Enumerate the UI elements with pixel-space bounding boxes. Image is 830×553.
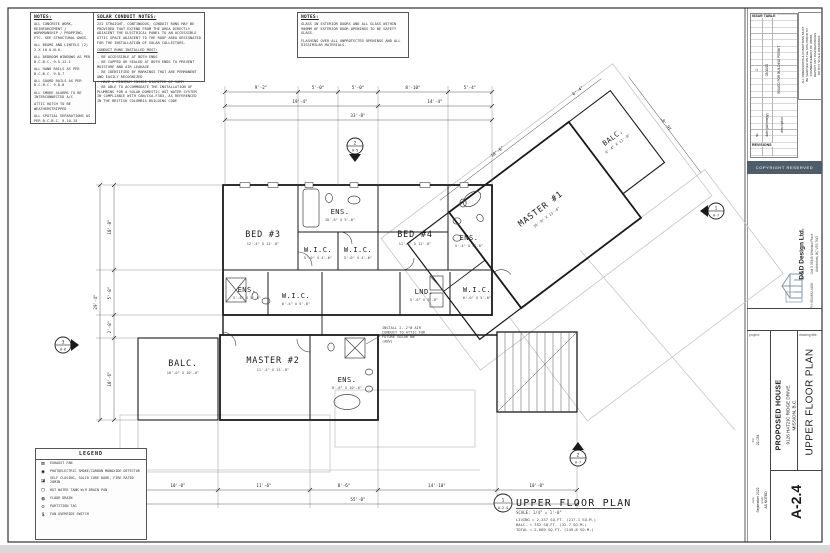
svg-text:ENS.: ENS. [338,376,357,384]
field-file-value: 22-034 [756,435,760,446]
svg-text:14'-10": 14'-10" [428,483,446,488]
svg-text:ENS.: ENS. [460,234,479,242]
svg-text:6'-4": 6'-4" [571,85,584,97]
plan-area-total: TOTAL = 2,689 SQ.FT. (249.8 SQ.M.) [516,527,594,532]
legend-item: $ FAN OVERRIDE SWITCH [36,511,146,519]
dimension-ticks [98,90,579,506]
issue-table-label: ISSUE TABLE [751,14,777,18]
svg-text:33'-8": 33'-8" [350,113,365,118]
notes-box-solar: SOLAR CONDUIT NOTES: 2X2 STRAIGHT, CONTI… [93,12,205,82]
note-item: ALL SPATIAL SEPARATIONS AS PER B.C.B.C. … [34,114,92,123]
fan-switch-icon: $ [39,512,47,518]
sheet-title: UPPER FLOOR PLAN [805,349,816,456]
copyright-band-text: COPYRIGHT RESERVED [756,165,814,170]
notes-box-right: NOTES: GLASS IN EXTERIOR DOORS AND ALL G… [297,12,409,58]
section-marker: 2 A-5 [347,138,363,162]
drawing-sheet: 9'-2" 5'-0" 5'-0" 8'-10" 5'-4" 19'-4" 14… [0,0,830,553]
svg-text:29'-4": 29'-4" [93,294,98,309]
fire-door-icon: ◪ [39,478,47,484]
legend-title: LEGEND [36,449,146,460]
dimension-lines [96,86,577,508]
legend-label: PARTITION TAG [50,505,77,509]
tb-divider [747,308,822,309]
page-edge-shadow [0,545,830,553]
svg-text:14'-4": 14'-4" [427,99,442,104]
legend-label: SELF CLOSING, SOLID CORE DOOR, FIRE RATE… [50,477,143,485]
legend-item: ◇ PARTITION TAG [36,503,146,511]
legend-item: ▢ HOT WATER TANK W/H DRAIN PAN [36,486,146,494]
legend-label: FLOOR DRAIN [50,497,72,501]
svg-text:1: 1 [715,206,718,212]
solar-notes-title: SOLAR CONDUIT NOTES: [97,15,201,20]
svg-text:ENS.: ENS. [238,286,257,294]
svg-text:3: 3 [62,340,65,346]
note-item: FLASHING OVER ALL UNPROTECTED OPENINGS A… [301,39,405,48]
svg-text:A-6: A-6 [60,348,66,352]
svg-text:1: 1 [502,498,505,504]
issue-col-no: no. [755,133,759,137]
section-marker: 1 A-7 [700,203,724,219]
svg-text:2: 2 [577,453,580,459]
svg-text:10'-8": 10'-8" [107,219,112,234]
svg-text:(ABV): (ABV) [382,340,393,344]
legend-label: HOT WATER TANK W/H DRAIN PAN [50,489,107,493]
svg-text:8'-10": 8'-10" [405,85,420,90]
sheet-number: A-2.4 [788,485,804,519]
svg-text:5'-0" X 4'-6": 5'-0" X 4'-6" [344,256,372,260]
svg-text:A-2.4: A-2.4 [498,506,508,510]
field-date-label: date: [751,497,755,504]
svg-text:5'-4" X 5'-0": 5'-4" X 5'-0" [233,296,261,300]
firm-address-1: Unit 3 33345 Whitelaw Place [810,234,814,275]
smoke-detector-icon: ◉ [39,469,47,475]
section-markers: 3 A-6 2 A-5 1 A-7 2 A [55,138,724,466]
note-item: ALL SMOKE ALARMS TO BE INTERCONNECTED A/… [34,91,92,100]
svg-text:INSTALL 2- 2"Ø AIR: INSTALL 2- 2"Ø AIR [382,325,422,330]
svg-text:11'-6" X 12'-0": 11'-6" X 12'-0" [399,242,431,246]
svg-text:W.I.C.: W.I.C. [344,246,372,254]
svg-text:FUTURE SOLAR HW: FUTURE SOLAR HW [382,335,415,339]
firm-phone: PH: 604.852.4406 [810,283,814,309]
legend-item: ◍ FLOOR DRAIN [36,495,146,503]
svg-text:LND.: LND. [415,288,434,296]
svg-text:9'-2": 9'-2" [255,85,268,90]
copyright-band: COPYRIGHT RESERVED [747,161,822,174]
svg-text:11'-6": 11'-6" [256,483,271,488]
tb-divider [747,330,822,331]
legend-label: PHOTOELECTRIC SMOKE/CARBON MONOXIDE DETE… [50,470,140,474]
svg-text:11'-4" X 13'-8": 11'-4" X 13'-8" [257,368,289,372]
dimension-texts: 9'-2" 5'-0" 5'-0" 8'-10" 5'-4" 19'-4" 14… [93,57,673,502]
table-column-line [762,13,763,156]
tb-divider [797,330,798,470]
table-column-line [772,13,773,156]
section-marker: 2 A-7 [570,442,586,466]
issue-row-desc: ISSUED FOR BUILDING PERMIT [777,46,781,94]
note-item: - BE IDENTIFIED BY MARKINGS THAT ARE PER… [97,70,201,79]
note-item: ALL CONCRETE WORK, REINFORCEMENT / WORKM… [34,22,92,41]
notes-right-title: NOTES: [301,15,405,20]
svg-text:12'-4" X 11'-0": 12'-4" X 11'-0" [247,242,279,246]
tb-divider [770,330,771,540]
svg-text:A-7: A-7 [575,461,581,465]
svg-text:5'-0": 5'-0" [312,85,325,90]
svg-text:8'-6" X 10'-6": 8'-6" X 10'-6" [332,386,362,390]
legend-item: ◉ PHOTOELECTRIC SMOKE/CARBON MONOXIDE DE… [36,468,146,476]
tb-divider [770,470,822,471]
hot-water-tank-icon: ▢ [39,487,47,493]
svg-text:W.I.C.: W.I.C. [463,286,491,294]
project-city: MISSION, B.C. [792,400,797,431]
note-item: GLASS IN EXTERIOR DOORS AND ALL GLASS WI… [301,22,405,36]
note-item: - BE ACCESSIBLE AT BOTH ENDS [97,55,201,60]
svg-text:10'-6" X 5'-0": 10'-6" X 5'-0" [325,218,355,222]
svg-text:A-7: A-7 [713,214,719,218]
svg-text:MASTER #2: MASTER #2 [246,356,299,366]
svg-text:5'-4": 5'-4" [464,85,477,90]
svg-text:BED #4: BED #4 [397,230,433,240]
legend-box: LEGEND ⊠ EXHAUST FAN ◉ PHOTOELECTRIC SMO… [35,448,147,540]
svg-text:5'-8": 5'-8" [107,287,112,300]
legend-item: ⊠ EXHAUST FAN [36,460,146,468]
svg-text:2: 2 [354,141,357,147]
issue-row-date: 03/10/22 [765,64,769,76]
svg-text:2'-8": 2'-8" [107,321,112,334]
drawing-title-label: drawing title: [799,333,818,337]
note-item: - HAVE A MINIMUM INSIDE DIAMETER OF 50MM [97,80,201,85]
note-item: - BE ABLE TO ACCOMMODATE THE INSTALLATIO… [97,85,201,104]
svg-text:BED #3: BED #3 [245,230,281,240]
plan-title-block: 1 A-2.4 UPPER FLOOR PLAN SCALE: 1/4" = 1… [494,494,632,532]
project-name: PROPOSED HOUSE [776,380,783,451]
svg-text:10'-6": 10'-6" [107,371,112,386]
svg-text:W.I.C.: W.I.C. [282,292,310,300]
svg-text:5'-6" X 5'-0": 5'-6" X 5'-0" [410,298,438,302]
svg-text:55'-0": 55'-0" [350,497,365,502]
svg-text:5'-0" X 4'-6": 5'-0" X 4'-6" [304,256,332,260]
svg-text:A-5: A-5 [352,149,358,153]
plan-title: UPPER FLOOR PLAN [516,498,632,509]
svg-text:8'-6": 8'-6" [338,483,351,488]
issue-col-desc: description [780,117,784,132]
walls-orthogonal-wing [138,185,577,420]
notes-box-left: NOTES: ALL CONCRETE WORK, REINFORCEMENT … [30,12,96,124]
svg-text:CONDUIT TO ATTIC FOR: CONDUIT TO ATTIC FOR [382,331,426,335]
room-labels: BED #3 12'-4" X 11'-0" ENS. 10'-6" X 5'-… [167,125,641,390]
field-file-label: file: [751,438,755,443]
note-item: ALL BEDROOM WINDOWS AS PER B.C.B.C. 9.5.… [34,55,92,64]
firm-address-2: Abbotsford, BC V2S 7W2 [815,236,819,272]
svg-text:6'-0" X 5'-0": 6'-0" X 5'-0" [463,296,491,300]
revisions-label: REVISIONS [751,143,773,147]
note-subhead: CONDUIT RUNS INSTALLED MUST: [97,48,201,53]
svg-text:10'-0": 10'-0" [170,483,185,488]
svg-text:10'-0": 10'-0" [529,483,544,488]
legend-item: ◪ SELF CLOSING, SOLID CORE DOOR, FIRE RA… [36,476,146,486]
notes-left-title: NOTES: [34,15,92,20]
floor-drain-icon: ◍ [39,496,47,502]
section-marker: 3 A-6 [55,337,79,353]
note-item: - BE CAPPED OR SEALED AT BOTH ENDS TO PR… [97,60,201,69]
issue-col-date: date (dd/mm/yy) [765,113,769,136]
note-item: ATTIC HATCH TO BE WEATHERSTRIPPED [34,102,92,111]
legend-label: EXHAUST FAN [50,462,72,466]
svg-text:6'-4" X 5'-0": 6'-4" X 5'-0" [282,302,310,306]
exhaust-fan-icon: ⊠ [39,461,47,467]
svg-text:19'-4": 19'-4" [292,99,307,104]
partition-tag-icon: ◇ [39,504,47,510]
disclaimer-line: DO NOT SCALE DRAWINGS. [817,35,821,75]
svg-text:10'-0" X 10'-0": 10'-0" X 10'-0" [167,371,199,375]
field-scale-value: AS NOTED [764,491,768,508]
firm-name: D&D Design Ltd. [799,228,806,279]
plan-scale: SCALE: 1/4" = 1'-0" [516,510,562,515]
note-item: ALL HAND RAILS AS PER B.C.B.C. 9.8.7 [34,67,92,76]
project-label: project: [749,333,760,337]
note-item: ALL GUARD RAILS AS PER B.C.B.C. 9.8.8 [34,79,92,88]
legend-label: FAN OVERRIDE SWITCH [50,513,89,517]
svg-text:ENS.: ENS. [331,208,350,216]
svg-text:5'-4" X 9'-8": 5'-4" X 9'-8" [455,244,483,248]
svg-text:5'-0": 5'-0" [352,85,365,90]
svg-text:BALC.: BALC. [168,359,198,369]
project-address: 9126 HATZIC RIDGE DRIVE [786,386,791,445]
note-item: ALL BEAMS AND LINTELS (2) 2 X 10 U.N.O. [34,43,92,52]
issue-row-no: 1 [755,69,759,71]
svg-text:W.I.C.: W.I.C. [304,246,332,254]
note-item: 2X2 STRAIGHT, CONTINUOUS, CONDUIT RUNS M… [97,22,201,45]
